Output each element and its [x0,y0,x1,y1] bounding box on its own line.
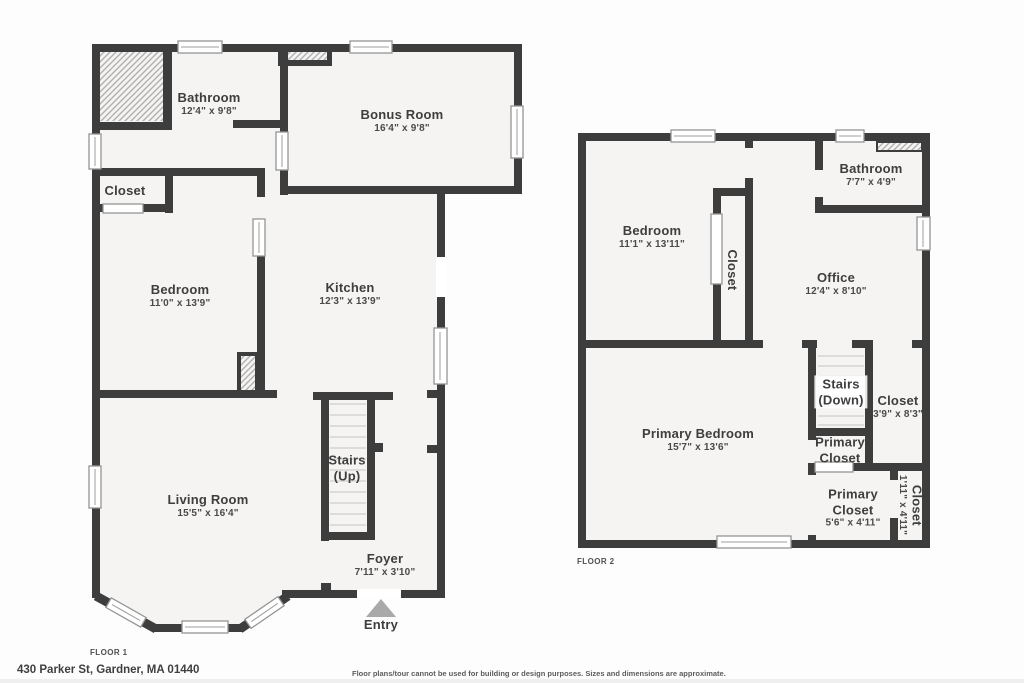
kitchen-side-door-gap [436,257,446,297]
window [350,41,392,53]
window [253,219,265,256]
window [511,106,523,158]
window [182,621,228,633]
window [836,130,864,142]
window [89,466,101,508]
disclaimer-text: Floor plans/tour cannot be used for buil… [352,669,726,678]
window [917,217,930,250]
entry-door-gap [357,589,401,599]
floor2-tag: FLOOR 2 [577,557,614,566]
floorplan-drawing [0,0,1024,683]
bottom-strip [0,679,1024,683]
entry-arrow [366,599,396,617]
window [89,134,101,169]
floor2-plan [578,130,930,548]
window [276,132,288,170]
open-area-hatch [100,52,163,121]
floorplan-canvas: Bathroom12'4" x 9'8"Bonus Room16'4" x 9'… [0,0,1024,683]
closet-door-opening [711,214,722,284]
floor1-plan [89,41,523,633]
closet-door-opening [103,204,143,213]
window [434,328,447,384]
window [178,41,222,53]
closet-door-opening [815,462,853,472]
window [717,536,791,548]
property-address: 430 Parker St, Gardner, MA 01440 [17,664,199,676]
floor1-footprint [92,44,522,632]
bathroom-hatch [877,142,922,151]
window [671,130,715,142]
floor1-tag: FLOOR 1 [90,648,127,657]
chimney-bedroom-hatch [239,354,257,396]
